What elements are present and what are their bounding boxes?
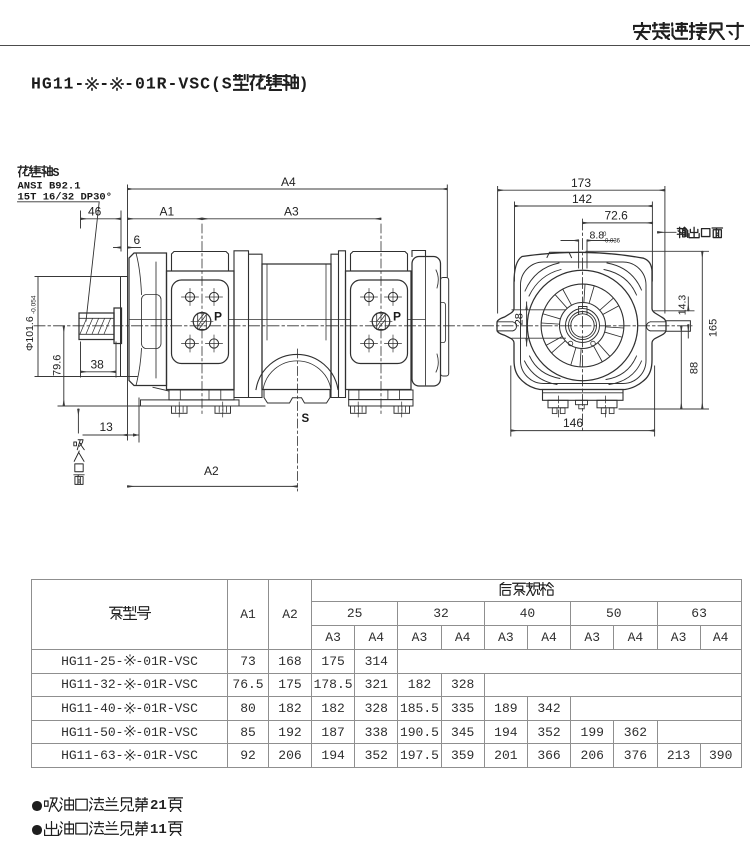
svg-text:P: P [214,309,222,323]
svg-text:14.3: 14.3 [677,295,689,316]
svg-text:72.6: 72.6 [605,209,629,223]
svg-text:Φ101.6: Φ101.6 [24,316,36,351]
svg-text:46: 46 [88,205,102,219]
svg-text:6: 6 [134,233,141,247]
svg-text:-0.054: -0.054 [31,295,38,314]
svg-text:88: 88 [689,362,701,374]
svg-text:13: 13 [100,420,114,434]
svg-text:A2: A2 [204,464,219,478]
svg-text:38: 38 [91,357,105,371]
svg-text:28: 28 [514,313,526,325]
svg-text:15T 16/32 DP30°: 15T 16/32 DP30° [18,192,113,204]
svg-text:79.6: 79.6 [52,355,64,376]
svg-text:165: 165 [708,319,720,337]
svg-text:ANSI B92.1: ANSI B92.1 [18,180,81,192]
svg-text:0: 0 [603,232,607,238]
svg-text:P: P [393,309,401,323]
svg-text:S: S [302,413,310,425]
svg-text:A4: A4 [281,175,296,189]
svg-text:S: S [53,167,60,180]
svg-text:146: 146 [563,416,583,430]
svg-text:142: 142 [572,192,592,206]
svg-text:-0.036: -0.036 [603,238,621,244]
svg-text:173: 173 [571,176,591,190]
svg-text:A1: A1 [160,205,175,219]
svg-text:A3: A3 [284,205,299,219]
